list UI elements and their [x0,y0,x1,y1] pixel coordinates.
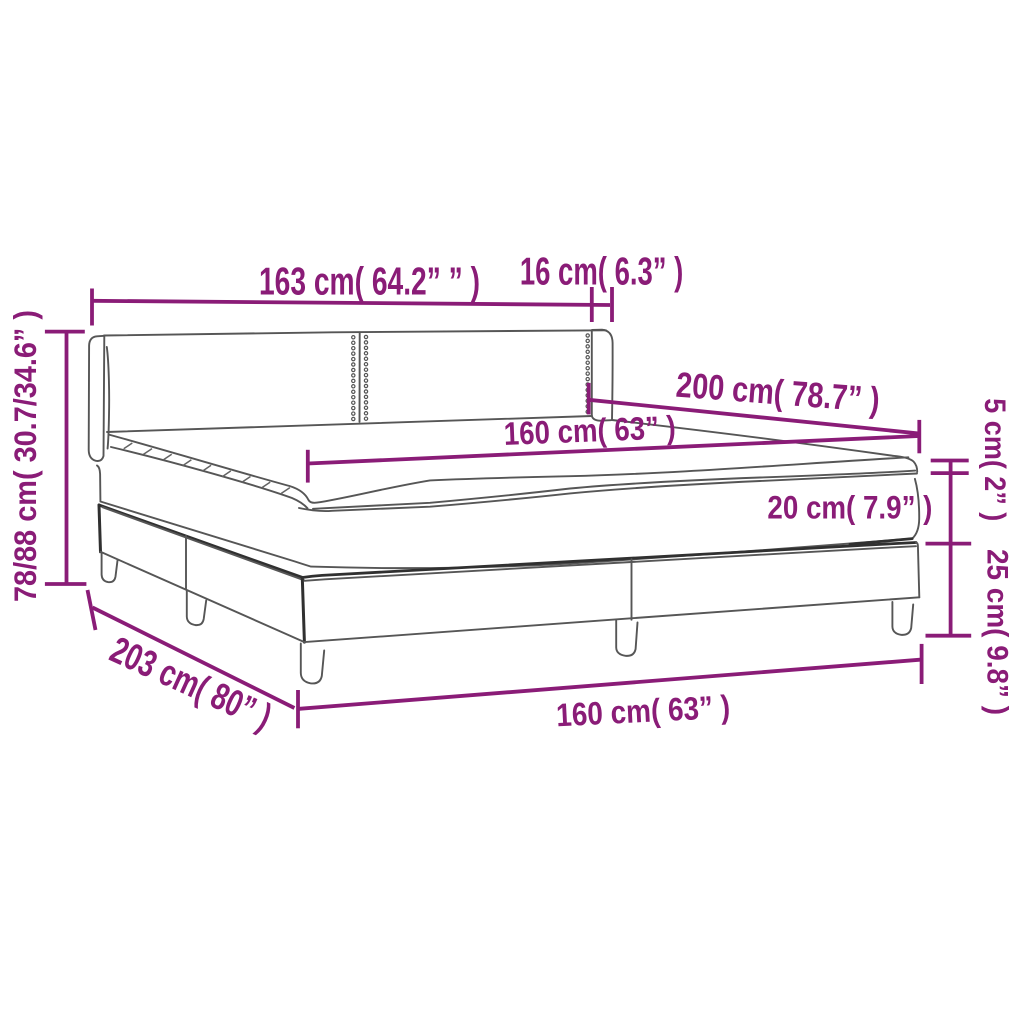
svg-text:78/88 cm( 30.7/34.6” ): 78/88 cm( 30.7/34.6” ) [7,310,43,602]
svg-text:16 cm( 6.3” ): 16 cm( 6.3” ) [520,251,684,294]
svg-text:160 cm( 63” ): 160 cm( 63” ) [555,689,731,734]
svg-text:25 cm( 9.8” ): 25 cm( 9.8” ) [981,549,1014,715]
svg-text:203 cm( 80” ): 203 cm( 80” ) [104,628,278,738]
svg-text:5 cm( 2” ): 5 cm( 2” ) [978,398,1011,521]
svg-text:163 cm( 64.2” ” ): 163 cm( 64.2” ” ) [259,260,480,303]
svg-text:20 cm( 7.9” ): 20 cm( 7.9” ) [767,490,932,526]
svg-text:160 cm( 63” ): 160 cm( 63” ) [503,409,676,452]
